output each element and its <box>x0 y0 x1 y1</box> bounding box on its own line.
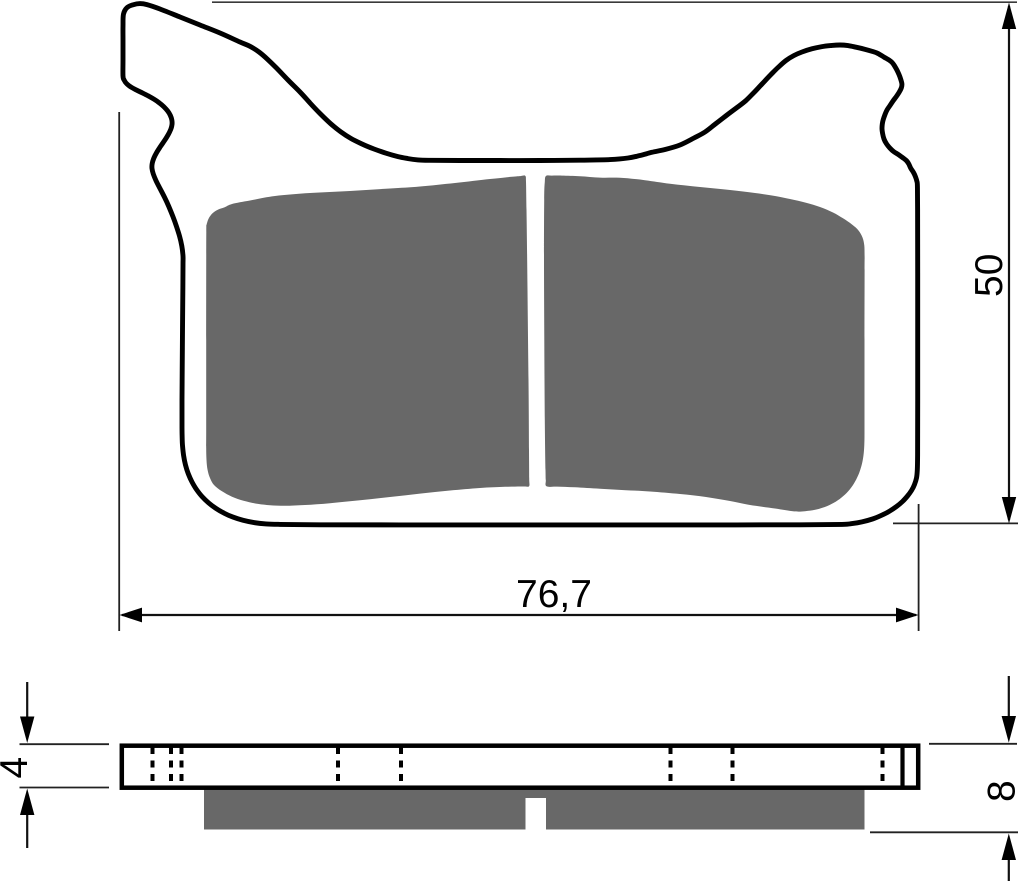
svg-text:8: 8 <box>981 780 1024 802</box>
svg-text:4: 4 <box>0 757 36 779</box>
svg-text:76,7: 76,7 <box>516 573 592 616</box>
svg-text:50: 50 <box>968 254 1011 297</box>
